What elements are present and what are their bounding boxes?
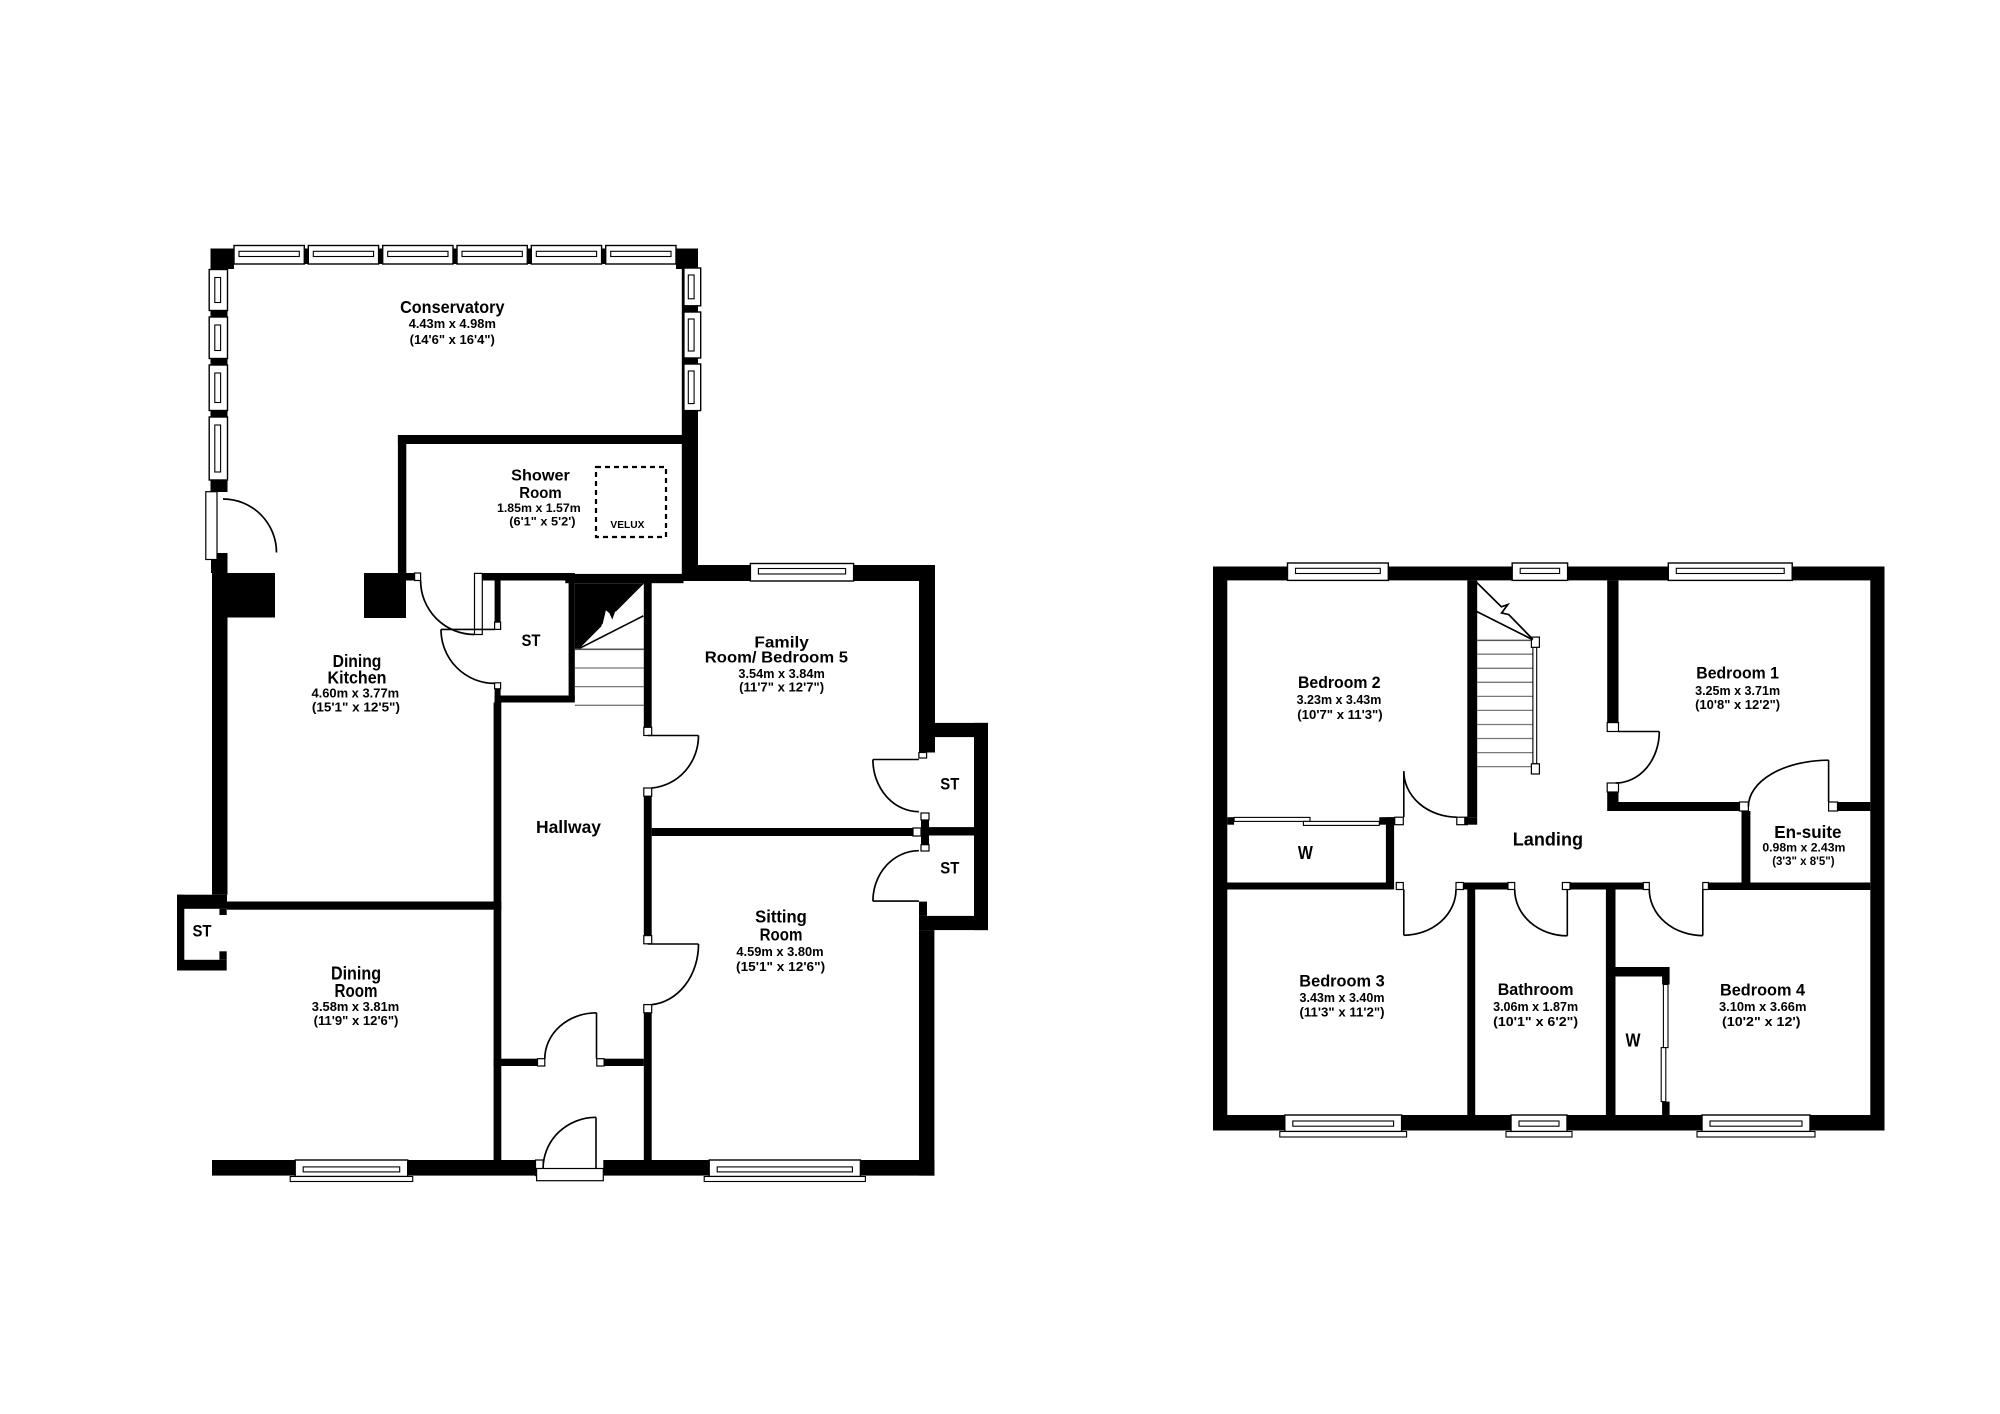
svg-text:Sitting: Sitting (755, 906, 807, 926)
svg-text:Bedroom 2: Bedroom 2 (1298, 673, 1381, 692)
svg-text:(10'1" x 6'2"): (10'1" x 6'2") (1493, 1014, 1578, 1029)
svg-text:ST: ST (940, 859, 960, 878)
svg-text:3.54m x 3.84m: 3.54m x 3.84m (738, 667, 824, 681)
svg-text:(3'3" x 8'5"): (3'3" x 8'5") (1772, 854, 1834, 868)
svg-text:VELUX: VELUX (610, 520, 644, 531)
svg-text:En-suite: En-suite (1774, 822, 1842, 842)
svg-text:3.06m x 1.87m: 3.06m x 1.87m (1493, 999, 1578, 1014)
svg-text:(10'2" x 12'): (10'2" x 12') (1722, 1014, 1801, 1029)
svg-text:ST: ST (522, 631, 542, 650)
svg-text:(6'1" x 5'2'): (6'1" x 5'2') (509, 515, 575, 529)
svg-text:(11'3" x 11'2"): (11'3" x 11'2") (1300, 1005, 1385, 1020)
svg-text:1.85m x 1.57m: 1.85m x 1.57m (497, 501, 581, 515)
svg-text:W: W (1298, 843, 1313, 863)
svg-text:W: W (1626, 1031, 1641, 1051)
svg-text:ST: ST (193, 922, 213, 941)
svg-text:(10'7" x 11'3"): (10'7" x 11'3") (1297, 707, 1382, 722)
svg-text:Bedroom 1: Bedroom 1 (1696, 664, 1779, 683)
svg-text:Hallway: Hallway (536, 817, 601, 837)
svg-text:Room/ Bedroom 5: Room/ Bedroom 5 (705, 649, 849, 666)
svg-text:3.58m x 3.81m: 3.58m x 3.81m (312, 999, 399, 1014)
svg-text:(15'1" x 12'5"): (15'1" x 12'5") (312, 700, 400, 715)
svg-text:Landing: Landing (1513, 829, 1583, 850)
svg-text:Room: Room (760, 925, 803, 945)
svg-text:Bedroom 3: Bedroom 3 (1299, 972, 1384, 991)
svg-text:0.98m x 2.43m: 0.98m x 2.43m (1762, 840, 1845, 854)
svg-text:Conservatory: Conservatory (400, 297, 504, 317)
svg-text:3.10m x 3.66m: 3.10m x 3.66m (1719, 999, 1807, 1014)
svg-text:ST: ST (940, 775, 960, 794)
svg-text:Bathroom: Bathroom (1498, 980, 1574, 999)
svg-text:4.43m x 4.98m: 4.43m x 4.98m (409, 316, 496, 331)
svg-text:4.59m x 3.80m: 4.59m x 3.80m (736, 944, 823, 959)
svg-text:Bedroom 4: Bedroom 4 (1720, 981, 1806, 1000)
svg-text:Room: Room (519, 485, 561, 502)
svg-text:3.43m x 3.40m: 3.43m x 3.40m (1300, 990, 1385, 1005)
svg-text:Room: Room (335, 980, 378, 1001)
svg-text:(15'1" x 12'6"): (15'1" x 12'6") (736, 959, 825, 974)
svg-text:(10'8" x 12'2"): (10'8" x 12'2") (1695, 697, 1780, 712)
svg-text:(11'7" x 12'7"): (11'7" x 12'7") (739, 680, 824, 694)
svg-text:(11'9" x 12'6"): (11'9" x 12'6") (314, 1013, 399, 1028)
svg-text:Shower: Shower (511, 468, 570, 485)
svg-text:3.25m x 3.71m: 3.25m x 3.71m (1695, 683, 1780, 698)
svg-text:3.23m x 3.43m: 3.23m x 3.43m (1297, 692, 1382, 707)
svg-text:4.60m x 3.77m: 4.60m x 3.77m (311, 685, 399, 700)
svg-text:(14'6" x 16'4"): (14'6" x 16'4") (410, 332, 495, 347)
